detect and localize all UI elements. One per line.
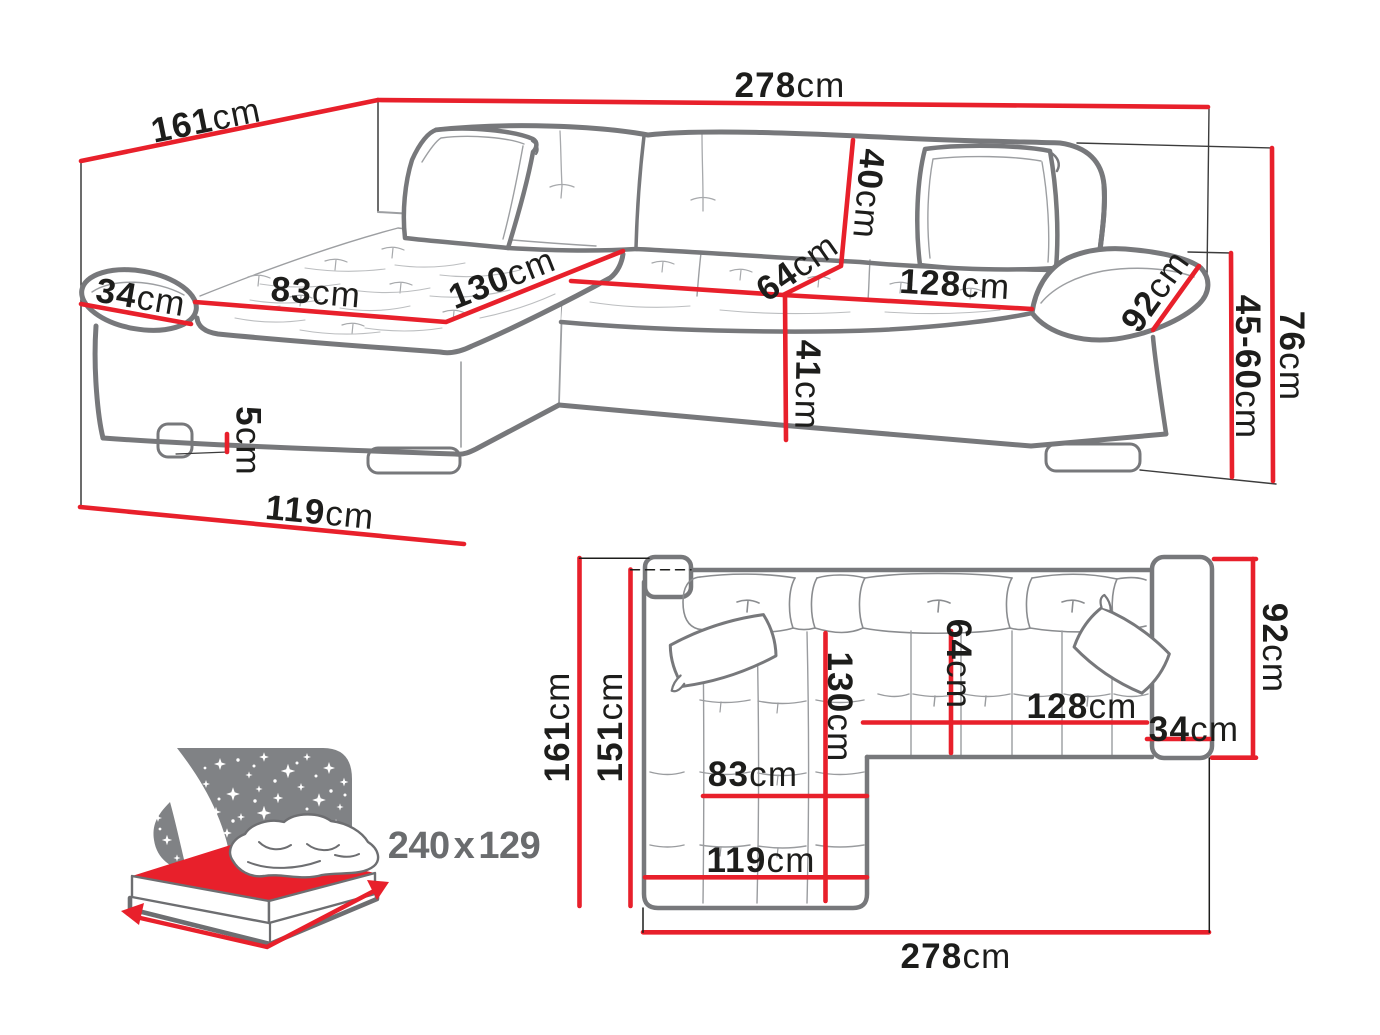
svg-text:278cm: 278cm	[734, 66, 845, 105]
svg-text:151cm: 151cm	[591, 671, 630, 782]
svg-text:240 x 129: 240 x 129	[388, 825, 541, 867]
svg-text:45-60cm: 45-60cm	[1229, 295, 1268, 440]
svg-text:278cm: 278cm	[900, 937, 1011, 976]
svg-text:40cm: 40cm	[846, 147, 893, 240]
svg-text:130cm: 130cm	[821, 651, 860, 762]
svg-text:34cm: 34cm	[1149, 710, 1239, 749]
svg-text:92cm: 92cm	[1256, 603, 1295, 693]
svg-text:119cm: 119cm	[264, 487, 376, 536]
svg-text:119cm: 119cm	[706, 841, 815, 880]
svg-text:128cm: 128cm	[898, 261, 1011, 306]
svg-text:83cm: 83cm	[269, 269, 362, 315]
svg-text:161cm: 161cm	[538, 671, 577, 782]
svg-text:83cm: 83cm	[708, 755, 798, 794]
svg-text:64cm: 64cm	[940, 619, 979, 709]
svg-text:41cm: 41cm	[788, 339, 829, 430]
svg-text:76cm: 76cm	[1273, 311, 1312, 401]
svg-text:161cm: 161cm	[148, 90, 265, 150]
svg-text:128cm: 128cm	[1026, 687, 1137, 726]
svg-text:5cm: 5cm	[229, 406, 268, 476]
